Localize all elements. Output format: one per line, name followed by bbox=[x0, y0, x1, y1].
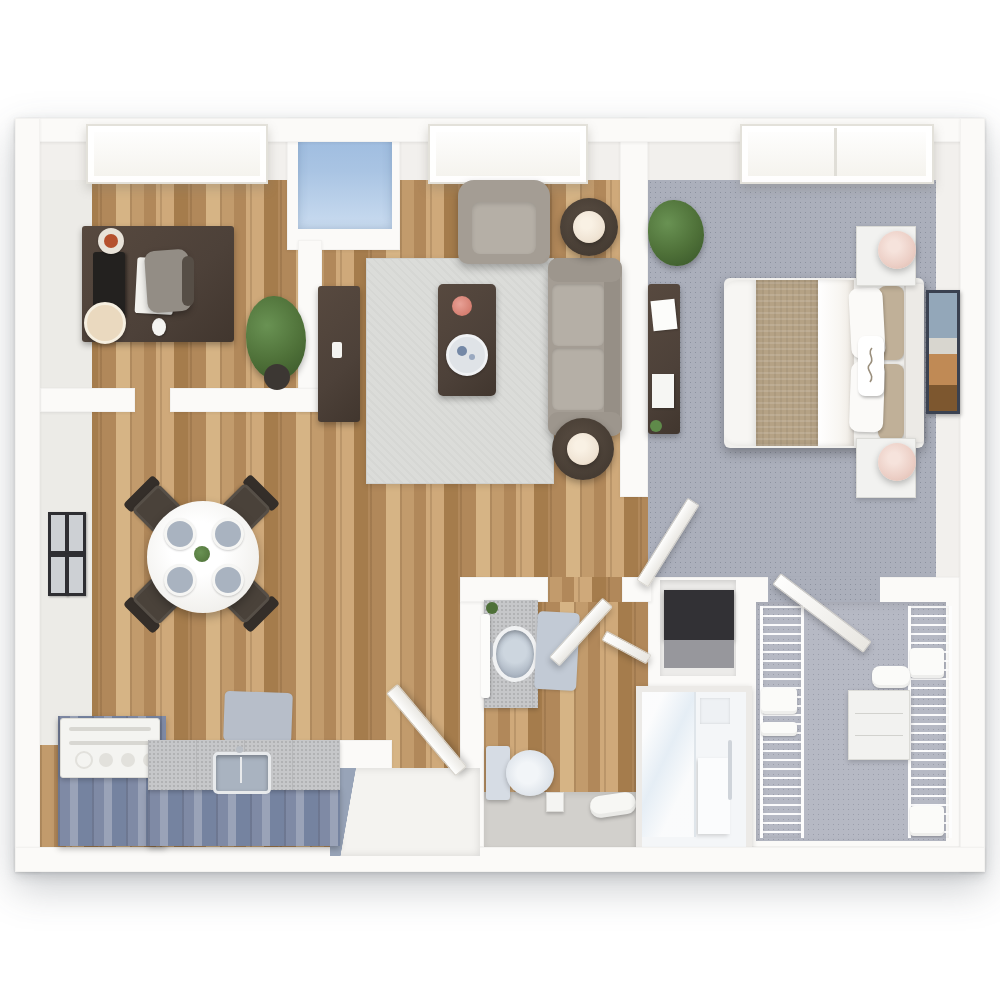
dresser-drawer-lines bbox=[855, 713, 903, 714]
linen-stack bbox=[761, 722, 797, 736]
waste-bin bbox=[546, 792, 564, 812]
armchair bbox=[458, 180, 550, 264]
shower-bench bbox=[698, 758, 730, 834]
living-room-window bbox=[428, 124, 588, 184]
closet-wire-shelving-right bbox=[908, 606, 952, 838]
blue-transom-window bbox=[298, 127, 392, 229]
entry-wall bbox=[332, 740, 392, 770]
linen-stack bbox=[761, 688, 797, 714]
den-wall-stub-east bbox=[170, 388, 322, 412]
bed-headboard bbox=[904, 284, 924, 442]
table-lamp-south bbox=[567, 433, 599, 465]
shower-shelf bbox=[700, 698, 730, 724]
gallery-frame bbox=[48, 512, 68, 554]
desk-binder bbox=[652, 374, 674, 408]
gallery-frame bbox=[66, 554, 86, 596]
shower-enclosure bbox=[636, 686, 752, 855]
toilet-bowl bbox=[506, 750, 554, 796]
kitchen-mat bbox=[223, 691, 293, 743]
shower-glass bbox=[642, 692, 696, 837]
place-setting bbox=[164, 518, 196, 550]
storage-cabinet-front bbox=[664, 640, 734, 668]
bedroom-window bbox=[740, 124, 934, 184]
linen-stack bbox=[910, 806, 944, 836]
closet-dresser bbox=[848, 690, 910, 760]
plate-stack bbox=[872, 666, 910, 688]
gallery-frame bbox=[48, 554, 68, 596]
coffee-table-flowers bbox=[452, 296, 472, 316]
bedroom-plant bbox=[648, 200, 704, 266]
coffee-cup-inner bbox=[104, 234, 118, 248]
kitchen-sink bbox=[213, 752, 271, 794]
range-burner bbox=[75, 751, 93, 769]
sofa-arm-north bbox=[548, 258, 622, 282]
sofa-cushion bbox=[552, 348, 604, 410]
exterior-wall-left bbox=[15, 118, 40, 872]
den-plant-pot bbox=[264, 364, 290, 390]
sofa bbox=[548, 258, 622, 436]
place-setting bbox=[212, 518, 244, 550]
floor-plan-image bbox=[0, 0, 1000, 1000]
tv-remote bbox=[332, 342, 342, 358]
den-window bbox=[86, 124, 268, 184]
bedroom-divider-wall bbox=[620, 118, 648, 497]
desk-plate bbox=[84, 302, 126, 344]
bedroom-lamp-south bbox=[878, 443, 916, 481]
linen-stack bbox=[910, 648, 944, 678]
storage-cabinet bbox=[664, 590, 734, 640]
gallery-frame bbox=[66, 512, 86, 554]
desk-cup-green bbox=[650, 420, 662, 432]
sofa-cushion bbox=[552, 284, 604, 346]
sink-divider bbox=[240, 757, 242, 783]
desk-chair-back bbox=[182, 256, 194, 306]
bed-accent-pillow bbox=[858, 336, 884, 396]
bed-tan-blanket bbox=[756, 280, 818, 446]
bed-footboard bbox=[724, 280, 758, 446]
kitchen-faucet bbox=[236, 746, 243, 753]
bathroom-top-wall-west bbox=[460, 577, 548, 602]
bedroom-lamp-north bbox=[878, 231, 916, 269]
hand-towel bbox=[481, 614, 490, 698]
armchair-seat bbox=[472, 202, 536, 254]
exterior-wall-bottom bbox=[15, 847, 985, 872]
accent-pillow-script bbox=[858, 336, 884, 396]
tray-detail bbox=[457, 346, 467, 356]
desk-papers bbox=[650, 299, 677, 331]
kitchen-range bbox=[60, 718, 160, 778]
den-wall-stub-west bbox=[40, 388, 135, 412]
vanity-plant bbox=[486, 602, 498, 614]
exterior-wall-right bbox=[960, 118, 985, 872]
coffee-cup bbox=[98, 228, 124, 254]
sofa-back bbox=[604, 262, 620, 432]
vanity-sink bbox=[492, 626, 538, 682]
shower-grab-bar bbox=[728, 740, 732, 800]
desk-mouse bbox=[152, 318, 166, 336]
bedroom-wall-art bbox=[926, 290, 960, 414]
range-handle bbox=[69, 727, 151, 731]
table-centerpiece-plant bbox=[194, 546, 210, 562]
place-setting bbox=[164, 564, 196, 596]
coffee-table-tray bbox=[446, 334, 488, 376]
table-lamp-north bbox=[573, 211, 605, 243]
kitchen-cabinet-front bbox=[148, 788, 340, 846]
bathroom-door-opening bbox=[548, 577, 622, 602]
place-setting bbox=[212, 564, 244, 596]
window-mullion bbox=[834, 128, 837, 176]
